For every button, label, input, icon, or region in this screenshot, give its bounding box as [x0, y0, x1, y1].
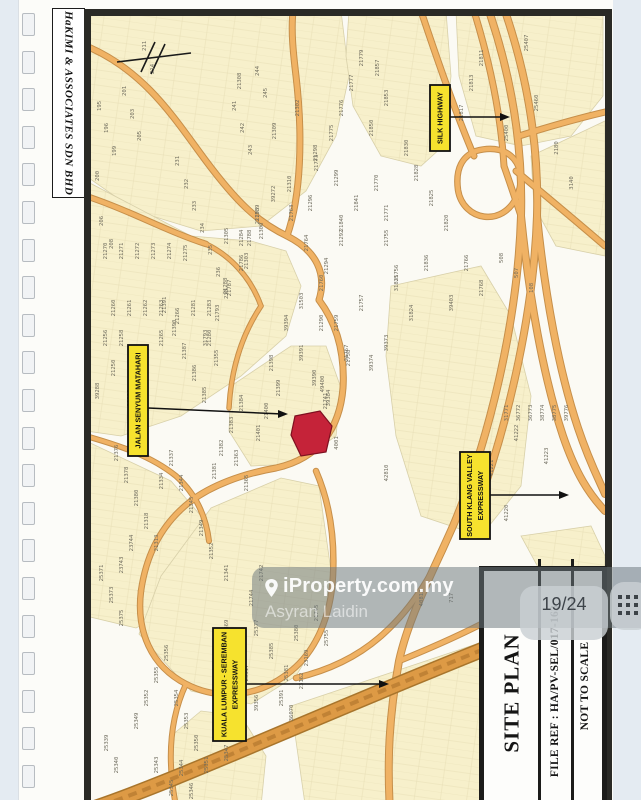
svg-text:39373: 39373: [384, 335, 390, 352]
svg-text:25385: 25385: [269, 643, 275, 660]
svg-text:25381: 25381: [284, 665, 290, 682]
svg-text:21352: 21352: [209, 543, 215, 560]
svg-text:21776: 21776: [339, 100, 345, 117]
svg-text:31824: 31824: [409, 304, 415, 321]
svg-text:21378: 21378: [124, 466, 130, 483]
svg-text:21789: 21789: [255, 205, 261, 222]
svg-text:203: 203: [130, 109, 136, 119]
svg-text:21775: 21775: [329, 125, 335, 142]
photo-pager-indicator: 19/24: [520, 594, 608, 615]
binder-hole: [22, 314, 35, 337]
svg-text:232: 232: [184, 179, 190, 189]
svg-text:21786: 21786: [239, 255, 245, 272]
svg-text:39403: 39403: [449, 295, 455, 312]
svg-text:25339: 25339: [104, 735, 110, 752]
binder-hole: [22, 13, 35, 36]
svg-text:21258: 21258: [119, 329, 125, 346]
svg-text:21820: 21820: [444, 215, 450, 232]
svg-text:205: 205: [137, 131, 143, 141]
svg-text:21763: 21763: [289, 205, 295, 222]
svg-text:23162: 23162: [299, 673, 305, 690]
svg-text:241: 241: [232, 101, 238, 111]
binder-hole: [22, 126, 35, 149]
binder-hole: [22, 389, 35, 412]
svg-text:25354: 25354: [174, 689, 180, 706]
svg-text:208: 208: [109, 238, 115, 249]
binder-hole: [22, 88, 35, 111]
svg-text:21270: 21270: [103, 243, 109, 260]
svg-text:21294: 21294: [324, 257, 330, 274]
svg-text:21283: 21283: [207, 300, 213, 317]
svg-text:25391: 25391: [279, 690, 285, 707]
svg-text:SILK HIGHWAY: SILK HIGHWAY: [436, 92, 445, 144]
svg-text:21382: 21382: [219, 440, 225, 457]
svg-text:JALAN SENYUM MATAHARI: JALAN SENYUM MATAHARI: [134, 353, 143, 449]
svg-text:21788: 21788: [247, 229, 253, 246]
svg-text:39394: 39394: [284, 314, 290, 331]
svg-text:38775: 38775: [552, 405, 558, 422]
svg-text:49400: 49400: [320, 376, 326, 393]
svg-text:25343: 25343: [154, 757, 160, 774]
svg-text:21390: 21390: [172, 320, 178, 337]
svg-text:23743: 23743: [119, 557, 125, 574]
svg-text:31503: 31503: [299, 293, 305, 310]
road-label-box: [213, 628, 246, 741]
svg-text:21275: 21275: [183, 245, 189, 262]
svg-text:23744: 23744: [129, 534, 135, 551]
svg-text:21755: 21755: [384, 230, 390, 247]
svg-text:21764: 21764: [304, 234, 310, 251]
svg-text:21836: 21836: [424, 255, 430, 272]
svg-text:21256: 21256: [103, 330, 109, 347]
location-pin-icon: [264, 578, 279, 598]
svg-text:21828: 21828: [414, 164, 420, 181]
svg-text:21857: 21857: [375, 60, 381, 77]
svg-text:199: 199: [112, 146, 118, 156]
svg-text:21770: 21770: [374, 175, 380, 192]
svg-text:21757: 21757: [359, 295, 365, 312]
svg-text:21758: 21758: [346, 349, 352, 366]
svg-text:25371: 25371: [99, 565, 105, 582]
svg-text:196: 196: [104, 123, 110, 133]
svg-text:2180: 2180: [554, 141, 560, 154]
svg-text:31793: 31793: [203, 330, 209, 347]
svg-text:25347: 25347: [224, 745, 230, 762]
svg-text:21313: 21313: [154, 535, 160, 552]
binder-hole: [22, 690, 35, 713]
svg-text:21380: 21380: [134, 490, 140, 507]
svg-text:242: 242: [240, 123, 246, 133]
screenshot-stage: HaKIMI & ASSOCIATES SDN BHD 195196199200…: [0, 0, 641, 800]
svg-text:211: 211: [142, 41, 148, 51]
binder-hole: [22, 239, 35, 262]
svg-text:21793: 21793: [215, 305, 221, 322]
svg-text:21386: 21386: [192, 365, 198, 382]
svg-text:21337: 21337: [169, 450, 175, 467]
binder-hole: [22, 502, 35, 525]
svg-text:41223: 41223: [544, 448, 550, 465]
svg-text:38774: 38774: [540, 404, 546, 421]
svg-text:21760: 21760: [319, 275, 325, 292]
binder-hole: [22, 539, 35, 562]
svg-text:25355: 25355: [154, 667, 160, 684]
svg-text:23169: 23169: [304, 650, 310, 667]
binder-hole: [22, 727, 35, 750]
svg-text:21305: 21305: [224, 228, 230, 245]
svg-text:236: 236: [216, 267, 222, 277]
svg-text:234: 234: [200, 222, 206, 233]
svg-text:21401: 21401: [256, 425, 262, 442]
svg-text:39374: 39374: [369, 354, 375, 371]
svg-text:21759: 21759: [334, 315, 340, 332]
svg-text:21296: 21296: [308, 195, 314, 212]
svg-text:21768: 21768: [479, 279, 485, 296]
svg-text:21825: 21825: [429, 190, 435, 207]
svg-text:21817: 21817: [459, 105, 465, 122]
svg-text:195: 195: [97, 101, 103, 111]
svg-text:36772: 36772: [516, 405, 522, 422]
binder-hole: [22, 652, 35, 675]
svg-text:41222: 41222: [514, 425, 520, 442]
svg-text:25460: 25460: [534, 95, 540, 112]
svg-text:36070: 36070: [289, 705, 295, 722]
svg-text:245: 245: [263, 88, 269, 98]
svg-text:SOUTH KLANG VALLEY: SOUTH KLANG VALLEY: [465, 454, 474, 537]
svg-text:21813: 21813: [469, 75, 475, 92]
svg-text:21383: 21383: [229, 417, 235, 434]
svg-text:21830: 21830: [404, 140, 410, 157]
iproperty-watermark: iProperty.com.my: [283, 575, 454, 598]
svg-text:25351: 25351: [204, 757, 210, 774]
svg-text:507: 507: [514, 268, 520, 278]
svg-text:25352: 25352: [144, 690, 150, 707]
svg-text:21787: 21787: [227, 280, 233, 297]
svg-text:EXPRESSWAY: EXPRESSWAY: [231, 659, 240, 709]
svg-text:31771: 31771: [504, 405, 510, 422]
svg-text:25345: 25345: [169, 780, 175, 797]
svg-text:233: 233: [192, 201, 198, 211]
binder-hole: [22, 163, 35, 186]
svg-text:21344: 21344: [179, 474, 185, 491]
svg-text:4001: 4001: [334, 436, 340, 449]
svg-text:21273: 21273: [151, 243, 157, 260]
svg-text:206: 206: [99, 216, 105, 226]
svg-text:21376: 21376: [114, 445, 120, 462]
svg-text:21290: 21290: [319, 315, 325, 332]
svg-text:21274: 21274: [167, 242, 173, 259]
svg-text:21318: 21318: [144, 512, 150, 529]
svg-text:243: 243: [248, 145, 254, 155]
svg-text:21384: 21384: [239, 394, 245, 411]
svg-text:21391: 21391: [162, 297, 168, 314]
svg-text:21284: 21284: [239, 229, 245, 246]
svg-text:25755: 25755: [324, 630, 330, 647]
svg-text:25400: 25400: [504, 125, 510, 142]
svg-text:21365: 21365: [244, 475, 250, 492]
svg-text:39272: 39272: [271, 186, 277, 203]
svg-text:EXPRESSWAY: EXPRESSWAY: [476, 470, 485, 520]
svg-text:508: 508: [499, 252, 505, 263]
svg-text:21261: 21261: [127, 300, 133, 317]
svg-text:39391: 39391: [299, 345, 305, 362]
svg-text:21299: 21299: [334, 170, 340, 187]
binder-hole: [22, 427, 35, 450]
svg-text:21281: 21281: [191, 300, 197, 317]
svg-text:21363: 21363: [234, 450, 240, 467]
svg-text:200: 200: [95, 171, 101, 181]
svg-text:KUALA LUMPUR - SEREMBAN: KUALA LUMPUR - SEREMBAN: [220, 632, 229, 737]
svg-text:21741: 21741: [323, 393, 329, 410]
svg-text:25340: 25340: [114, 757, 120, 774]
svg-text:21387: 21387: [182, 343, 188, 360]
svg-text:21756: 21756: [394, 265, 400, 282]
svg-text:39390: 39390: [312, 370, 318, 387]
svg-text:235: 235: [208, 245, 214, 255]
svg-text:21271: 21271: [119, 243, 125, 260]
svg-text:39356: 39356: [254, 695, 260, 712]
svg-text:39288: 39288: [95, 382, 101, 399]
binder-hole: [22, 276, 35, 299]
svg-text:39776: 39776: [564, 405, 570, 422]
svg-text:108: 108: [529, 282, 535, 293]
surveyor-stamp-text: HaKIMI & ASSOCIATES SDN BHD: [63, 11, 75, 195]
binder-hole: [22, 51, 35, 74]
svg-text:21309: 21309: [272, 123, 278, 140]
svg-text:21334: 21334: [159, 472, 165, 489]
agent-watermark: Asyran Laidin: [265, 602, 368, 622]
svg-text:21355: 21355: [214, 350, 220, 367]
svg-text:21265: 21265: [159, 330, 165, 347]
svg-text:21262: 21262: [143, 300, 149, 317]
site-plan-title: SITE PLAN: [500, 633, 525, 752]
svg-text:21398: 21398: [269, 354, 275, 371]
svg-text:21302: 21302: [295, 100, 301, 117]
svg-text:21272: 21272: [135, 243, 141, 260]
svg-text:21771: 21771: [384, 205, 390, 222]
svg-text:21853: 21853: [384, 90, 390, 107]
svg-text:21260: 21260: [111, 300, 117, 317]
svg-text:21841: 21841: [354, 195, 360, 212]
binder-hole: [22, 351, 35, 374]
svg-text:41220: 41220: [504, 505, 510, 522]
svg-text:25407: 25407: [524, 35, 530, 52]
svg-text:21766: 21766: [464, 255, 470, 272]
svg-text:21341: 21341: [224, 565, 230, 582]
svg-text:21349: 21349: [199, 520, 205, 537]
svg-text:21850: 21850: [369, 120, 375, 137]
svg-text:21310: 21310: [287, 176, 293, 193]
svg-text:25353: 25353: [184, 713, 190, 730]
svg-text:21773: 21773: [314, 155, 320, 172]
highlighted-subject-lot: [291, 411, 332, 456]
binder-hole: [22, 615, 35, 638]
svg-text:21840: 21840: [339, 215, 345, 232]
svg-text:25373: 25373: [109, 587, 115, 604]
svg-text:21779: 21779: [359, 50, 365, 67]
svg-text:25349: 25349: [134, 713, 140, 730]
svg-text:244: 244: [255, 65, 261, 76]
binder-hole: [22, 577, 35, 600]
scale-note: NOT TO SCALE: [579, 642, 591, 731]
binder-hole: [22, 765, 35, 788]
gallery-grid-icon[interactable]: [618, 595, 638, 615]
svg-text:214: 214: [150, 63, 156, 74]
surveyor-stamp-box: HaKIMI & ASSOCIATES SDN BHD: [52, 8, 85, 198]
svg-text:21399: 21399: [276, 380, 282, 397]
svg-text:25346: 25346: [189, 783, 195, 800]
svg-text:36773: 36773: [528, 405, 534, 422]
svg-text:21345: 21345: [189, 497, 195, 514]
svg-text:25375: 25375: [119, 610, 125, 627]
svg-text:231: 231: [175, 156, 181, 166]
svg-text:21308: 21308: [237, 72, 243, 89]
svg-text:21777: 21777: [349, 75, 355, 92]
svg-text:21250: 21250: [111, 360, 117, 377]
svg-text:3140: 3140: [569, 176, 575, 189]
svg-text:21381: 21381: [212, 463, 218, 480]
binder-hole: [22, 464, 35, 487]
svg-text:21400: 21400: [264, 403, 270, 420]
svg-text:25350: 25350: [194, 735, 200, 752]
svg-text:25344: 25344: [179, 759, 185, 776]
binder-hole: [22, 201, 35, 224]
svg-text:25356: 25356: [164, 645, 170, 662]
svg-text:21385: 21385: [202, 387, 208, 404]
svg-text:42810: 42810: [384, 465, 390, 482]
svg-text:201: 201: [122, 86, 128, 96]
svg-text:21811: 21811: [479, 50, 485, 67]
